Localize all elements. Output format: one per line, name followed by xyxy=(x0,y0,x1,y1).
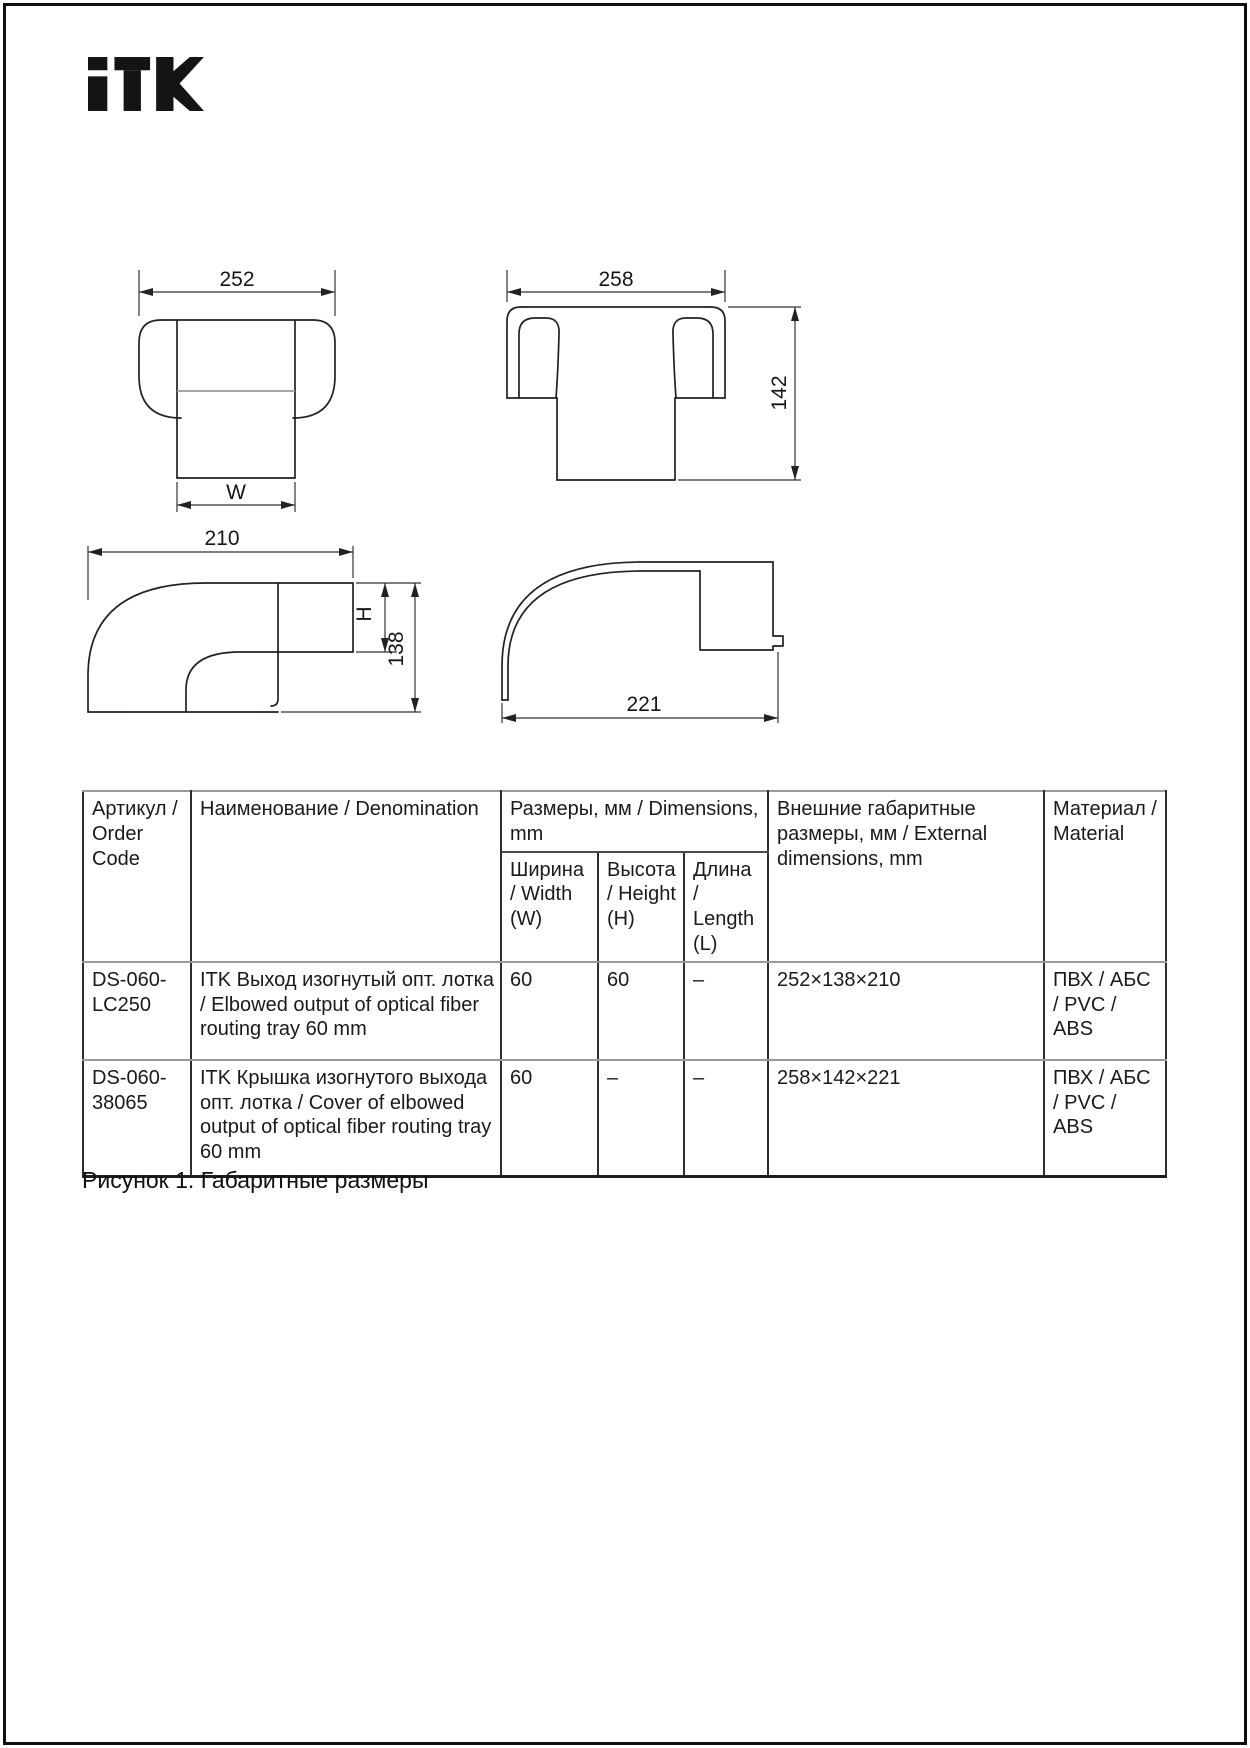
cell-order-code: DS-060-LC250 xyxy=(83,962,191,1060)
cell-order-code: DS-060-38065 xyxy=(83,1060,191,1177)
col-header-width: Ширина / Width (W) xyxy=(501,852,598,962)
dim-label-142: 142 xyxy=(768,375,791,410)
col-header-external-dimensions: Внешние габаритные размеры, мм / Externa… xyxy=(768,791,1044,962)
table-row: DS-060-38065 ITK Крышка изогнутого выход… xyxy=(83,1060,1166,1177)
cell-external-dimensions: 258×142×221 xyxy=(768,1060,1044,1177)
cell-length: – xyxy=(684,962,768,1060)
logo-k xyxy=(156,57,204,111)
datasheet-page: 252 W 258 142 xyxy=(0,0,1250,1748)
cell-height: – xyxy=(598,1060,684,1177)
dimensions-table: Артикул / Order Code Наименование / Deno… xyxy=(82,790,1167,1178)
cell-material: ПВХ / АБС / PVC / ABS xyxy=(1044,962,1166,1060)
cell-denomination: ITK Крышка изогнутого выхода опт. лотка … xyxy=(191,1060,501,1177)
cell-width: 60 xyxy=(501,1060,598,1177)
col-header-length: Длина / Length (L) xyxy=(684,852,768,962)
itk-logo xyxy=(88,57,204,111)
cell-external-dimensions: 252×138×210 xyxy=(768,962,1044,1060)
logo-t-stem xyxy=(124,70,141,111)
table-row: DS-060-LC250 ITK Выход изогнутый опт. ло… xyxy=(83,962,1166,1060)
col-header-denomination: Наименование / Denomination xyxy=(191,791,501,962)
dim-label-210: 210 xyxy=(204,527,239,550)
col-header-height: Высота / Height (H) xyxy=(598,852,684,962)
cell-width: 60 xyxy=(501,962,598,1060)
figure-caption: Рисунок 1. Габаритные размеры xyxy=(82,1167,428,1194)
col-header-material: Материал / Material xyxy=(1044,791,1166,962)
dim-label-221: 221 xyxy=(626,693,661,716)
cell-length: – xyxy=(684,1060,768,1177)
logo-i-stem xyxy=(88,76,107,111)
cell-denomination: ITK Выход изогнутый опт. лотка / Elbowed… xyxy=(191,962,501,1060)
dim-label-h: H xyxy=(353,606,376,621)
col-header-dimensions-group: Размеры, мм / Dimensions, mm xyxy=(501,791,768,852)
cell-height: 60 xyxy=(598,962,684,1060)
drawing-elbow-front-view: 252 W xyxy=(139,268,335,512)
dim-label-258: 258 xyxy=(598,268,633,291)
dim-label-w: W xyxy=(226,481,246,504)
cell-material: ПВХ / АБС / PVC / ABS xyxy=(1044,1060,1166,1177)
dim-label-138: 138 xyxy=(385,631,408,666)
drawing-cover-side-view: 221 xyxy=(502,562,783,723)
drawing-cover-front-view: 258 142 xyxy=(507,268,801,480)
dimension-drawings: 252 W 258 142 xyxy=(60,250,820,745)
dim-label-252: 252 xyxy=(219,268,254,291)
col-header-order-code: Артикул / Order Code xyxy=(83,791,191,962)
logo-t-bar xyxy=(114,57,150,70)
logo-i-dot xyxy=(88,57,107,70)
drawing-elbow-side-view: 210 H 138 xyxy=(88,527,421,712)
